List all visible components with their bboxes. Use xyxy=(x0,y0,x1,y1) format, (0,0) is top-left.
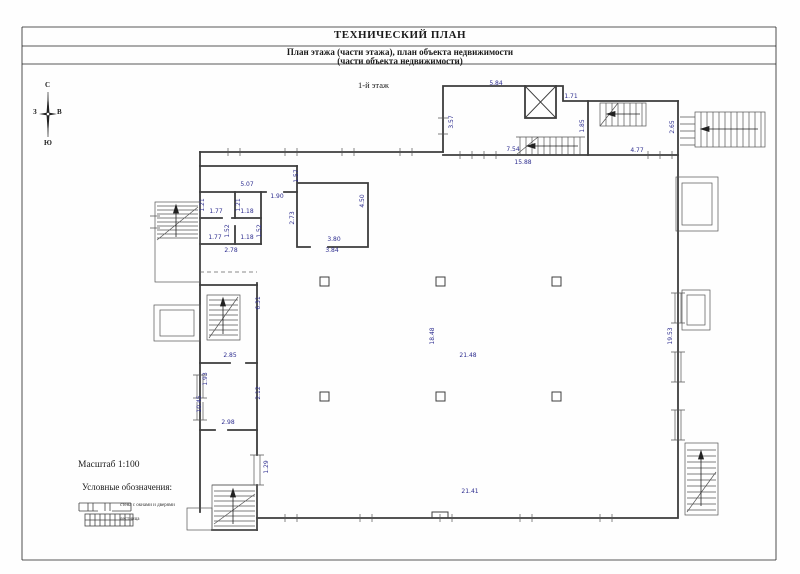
dimension-label: 1.57 xyxy=(294,169,300,182)
dimension-label: 1.77 xyxy=(208,235,221,241)
compass-rose-icon xyxy=(39,92,57,137)
dimension-label: 2.78 xyxy=(224,248,237,254)
document-subtitle-2: (части объекта недвижимости) xyxy=(0,56,800,66)
scale-label: Масштаб 1:100 xyxy=(78,460,140,470)
dimension-label: 21.41 xyxy=(461,489,478,495)
dimension-label: 2.12 xyxy=(256,386,262,399)
dimension-label: 1.90 xyxy=(270,194,283,200)
dimension-label: 1.77 xyxy=(209,209,222,215)
stairs-and-windows xyxy=(150,103,765,530)
dimension-label: 3.57 xyxy=(449,115,455,128)
dimension-label: 7.54 xyxy=(506,147,519,153)
dimension-label: 4.77 xyxy=(630,148,643,154)
dimension-label: 5.84 xyxy=(489,81,502,87)
dimension-label: 1.29 xyxy=(264,460,270,473)
floor-label: 1-й этаж xyxy=(358,80,389,90)
compass-south-label: Ю xyxy=(44,139,52,147)
dimension-label: 2.98 xyxy=(221,420,234,426)
technical-plan-page: ТЕХНИЧЕСКИЙ ПЛАН План этажа (части этажа… xyxy=(0,0,800,574)
dimension-label: 1.18 xyxy=(240,209,253,215)
stair-arrows xyxy=(174,112,759,525)
dimension-label: 6.31 xyxy=(256,296,262,309)
dimension-label: 2.85 xyxy=(223,353,236,359)
dimension-label: 3.84 xyxy=(325,248,338,254)
elevator-shaft-icon xyxy=(525,86,556,118)
compass-north-label: С xyxy=(45,81,50,89)
dimension-label: 2.65 xyxy=(670,120,676,133)
dimension-label: 1.52 xyxy=(257,224,263,237)
dimension-label: 1.85 xyxy=(580,119,586,132)
dimension-label: 10.45 xyxy=(197,395,203,412)
dimension-label: 1.21 xyxy=(200,198,206,211)
dimension-label: 21.48 xyxy=(459,353,476,359)
dimension-label: 4.50 xyxy=(360,194,366,207)
legend-item-staircase xyxy=(84,513,136,533)
dimension-label: 5.07 xyxy=(240,182,253,188)
document-title: ТЕХНИЧЕСКИЙ ПЛАН xyxy=(0,29,800,41)
dimension-label: 19.53 xyxy=(668,327,674,344)
page-frame xyxy=(22,27,776,560)
compass-west-label: З xyxy=(33,108,37,116)
dimension-label: 1.71 xyxy=(564,94,577,100)
dimension-label: 1.93 xyxy=(203,372,209,385)
walls xyxy=(200,86,678,530)
dimension-label: 15.88 xyxy=(514,160,531,166)
hall-columns xyxy=(320,277,561,401)
legend-item-staircase-label: лестница xyxy=(120,517,140,522)
dimension-label: 1.18 xyxy=(240,235,253,241)
dimension-label: 3.80 xyxy=(327,237,340,243)
legend-title: Условные обозначения: xyxy=(82,482,172,492)
dimension-label: 18.48 xyxy=(430,327,436,344)
dimension-label: 2.73 xyxy=(290,211,296,224)
dimension-label: 1.52 xyxy=(225,224,231,237)
legend-item-wall-label: стена с окнами и дверями xyxy=(120,503,175,508)
compass-east-label: В xyxy=(57,108,62,116)
